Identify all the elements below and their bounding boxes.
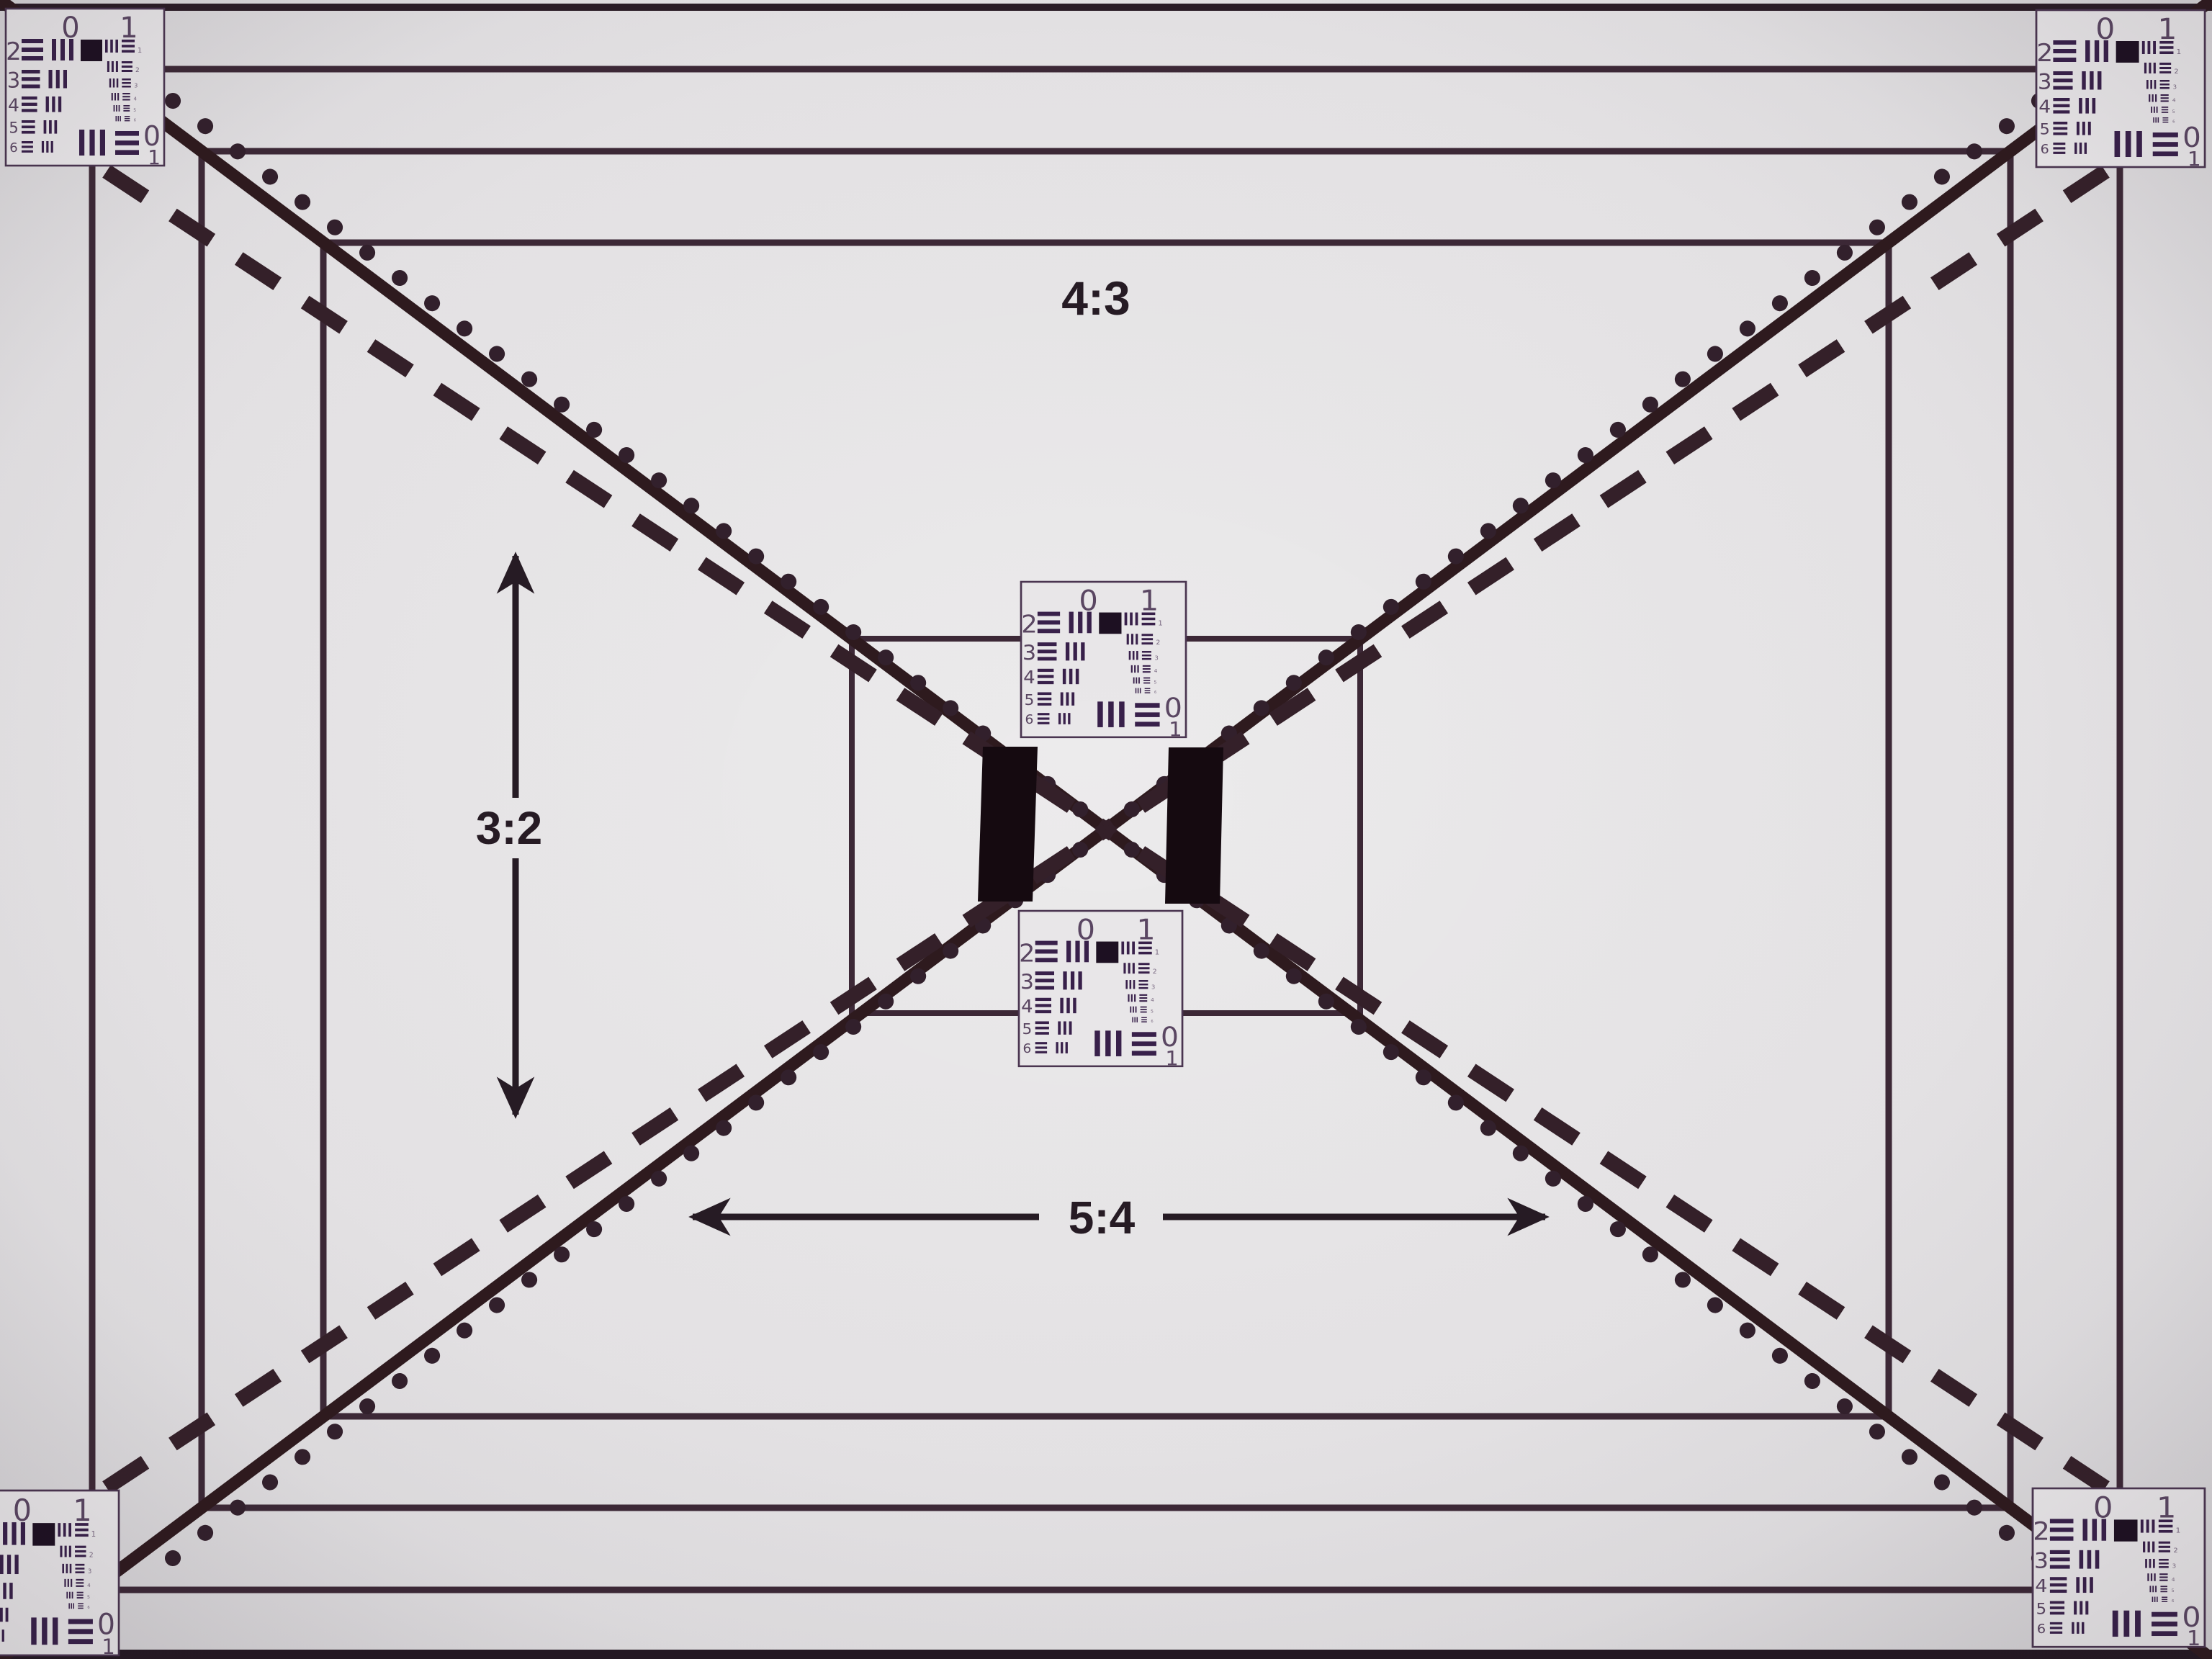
vignette-overlay xyxy=(0,0,2212,1659)
framing-chart-svg: 4:3 3:2 5:4 012345612345601 012345612345… xyxy=(0,0,2212,1659)
test-chart-photo: 4:3 3:2 5:4 012345612345601 012345612345… xyxy=(0,0,2212,1659)
